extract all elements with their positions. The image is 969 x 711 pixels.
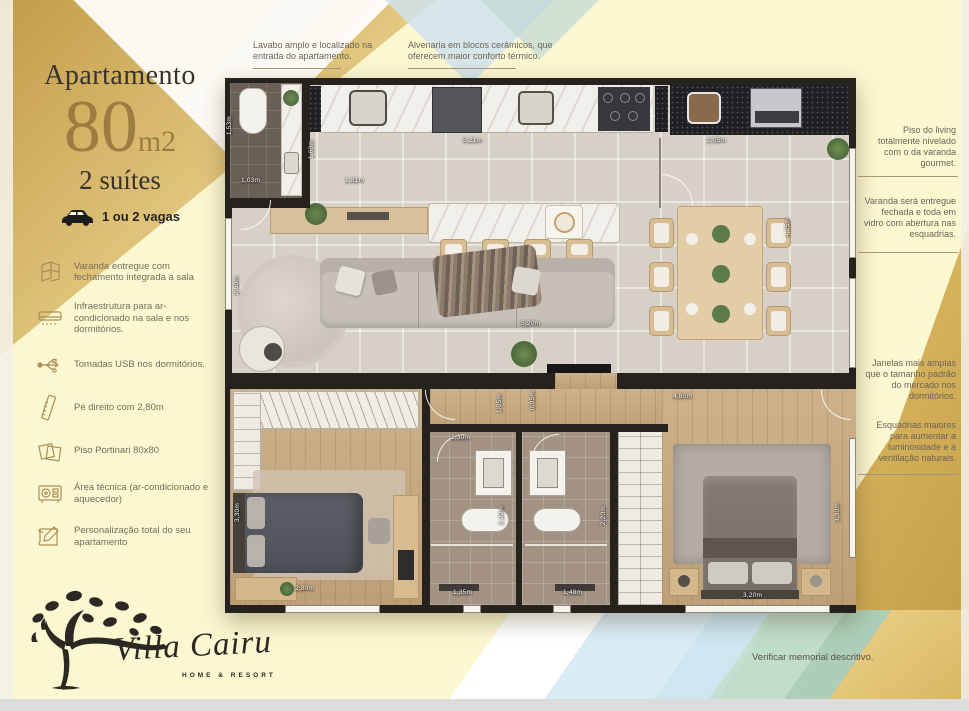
leader-line: [408, 68, 516, 69]
dimension-label: 5,21m: [463, 138, 482, 145]
bed-suite2: [703, 476, 797, 590]
bed-suite1: [245, 493, 363, 573]
shower-glass: [525, 544, 607, 546]
dimension-label: 2,60m: [234, 276, 241, 295]
dimension-label: 2,20m: [601, 506, 608, 525]
area-unit: m2: [138, 125, 176, 158]
bath2-toilet: [533, 508, 581, 532]
pillow: [511, 266, 541, 296]
annotation-janelas: Janelas mais amplas que o tamanho padrão…: [860, 358, 956, 402]
floor-tile-icon: [36, 437, 64, 465]
window: [849, 278, 856, 368]
cooktop: [598, 87, 650, 131]
dimension-label: 2,80m: [295, 586, 314, 593]
disclaimer-note: Verificar memorial descritivo.: [752, 652, 873, 663]
dimension-label: 4,80m: [673, 394, 692, 401]
window: [849, 438, 856, 558]
dining-chair: [766, 262, 791, 292]
annotation-alvenaria: Alvenaria em blocos cerâmicos, que ofere…: [408, 40, 588, 62]
varanda-icon: [36, 258, 64, 286]
feature-item: Infraestrutura para ar-condicionado na s…: [36, 301, 218, 336]
closet-suite2: [618, 432, 662, 605]
brochure-page: Apartamento 80m2 2 suítes 1 ou 2 vagas V…: [0, 0, 969, 711]
nightstand: [801, 568, 831, 596]
right-edge: [961, 0, 969, 711]
feature-item: Personalização total do seu apartamento: [36, 523, 218, 551]
window: [849, 148, 856, 258]
window: [463, 605, 481, 613]
dimension-label: 0,95m: [530, 391, 537, 410]
feature-list: Varanda entregue com fechamento integrad…: [36, 258, 218, 551]
dimension-label: 1,05m: [497, 394, 504, 413]
annotation-lavabo: Lavabo amplo e localizado na entrada do …: [253, 40, 391, 62]
brand-logo: Villa Cairu HOME & RESORT: [22, 584, 292, 699]
dimension-label: 3,20m: [743, 593, 762, 600]
tech-area-icon: [36, 480, 64, 508]
brand-tagline: HOME & RESORT: [182, 672, 276, 679]
leader-line: [858, 176, 958, 177]
dining-chair: [649, 218, 674, 248]
annotation-varanda-vidro: Varanda será entregue fechada e toda em …: [860, 196, 956, 240]
area-value: 80: [64, 86, 138, 168]
varanda-sink: [687, 92, 721, 124]
floor-plan: 1,53m 1,03m 1,60m 1,81m 5,21m 2,05m 4,25…: [225, 78, 856, 613]
plant: [827, 138, 849, 160]
desk-chair: [368, 518, 390, 544]
dimension-label: 1,81m: [345, 178, 364, 185]
window: [285, 605, 380, 613]
window: [553, 605, 571, 613]
stool: [566, 239, 593, 260]
kitchen-sink-2: [518, 91, 554, 125]
shower-glass: [431, 544, 513, 546]
ruler-icon: [36, 394, 64, 422]
side-table: [239, 326, 285, 372]
dimension-label: 1,53m: [227, 116, 234, 135]
dimension-label: 4,25m: [785, 218, 792, 237]
varanda-door-marker: [655, 86, 668, 132]
bath1-vanity: [475, 450, 512, 496]
leader-line: [858, 252, 958, 253]
island-counter: [428, 203, 620, 243]
annotation-piso-living: Piso do living totalmente nivelado com o…: [860, 125, 956, 169]
dimension-label: 1,35m: [453, 590, 472, 597]
plant: [511, 341, 537, 367]
kitchen-appliance: [432, 87, 482, 133]
feature-item: Área técnica (ar-condicionado e aquecedo…: [36, 480, 218, 508]
dimension-label: 3,30m: [235, 503, 242, 522]
tv: [547, 364, 611, 373]
dimension-label: 5,20m: [521, 321, 540, 328]
dimension-label: 1,48m: [563, 590, 582, 597]
lavabo-sink: [284, 152, 299, 174]
leader-line: [253, 68, 341, 69]
dimension-label: 1,60m: [309, 140, 316, 159]
suites-subtitle: 2 suítes: [14, 165, 226, 196]
pillow: [371, 269, 398, 296]
dining-chair: [649, 262, 674, 292]
left-edge: [0, 0, 13, 711]
brand-name: Villa Cairu: [113, 624, 273, 669]
annotation-esquadrias: Esquadrias maiores para aumentar a lumin…: [860, 420, 956, 464]
window: [225, 218, 232, 310]
kitchen-sink: [349, 90, 387, 126]
decor-plate: [554, 212, 575, 233]
parking-label: 1 ou 2 vagas: [102, 209, 180, 224]
dimension-label: 3,30m: [835, 503, 842, 522]
car-icon: [60, 208, 94, 226]
blueprint-icon: [36, 523, 64, 551]
nightstand: [669, 568, 699, 596]
feature-item: Varanda entregue com fechamento integrad…: [36, 258, 218, 286]
usb-icon: [36, 351, 64, 379]
dimension-label: 1,03m: [241, 178, 260, 185]
dining-chair: [766, 306, 791, 336]
ac-unit-icon: [36, 304, 64, 332]
toilet: [239, 88, 267, 134]
sideboard-decor: [347, 212, 389, 220]
plant: [283, 90, 299, 106]
bottom-bar: [0, 699, 969, 711]
feature-item: Pé direito com 2,80m: [36, 394, 218, 422]
dimension-label: 2,20m: [499, 506, 506, 525]
feature-item: Piso Portinari 80x80: [36, 437, 218, 465]
dining-table: [677, 206, 763, 340]
leader-line: [858, 474, 958, 475]
dimension-label: 1,30m: [451, 435, 470, 442]
dining-chair: [649, 306, 674, 336]
unit-header: Apartamento 80m2 2 suítes 1 ou 2 vagas: [14, 60, 226, 226]
feature-item: Tomadas USB nos dormitórios.: [36, 351, 218, 379]
parking-row: 1 ou 2 vagas: [14, 208, 226, 226]
corridor-opening: [555, 373, 617, 389]
window: [685, 605, 830, 613]
desk: [393, 495, 419, 599]
grill: [750, 88, 802, 128]
dimension-label: 2,05m: [707, 138, 726, 145]
